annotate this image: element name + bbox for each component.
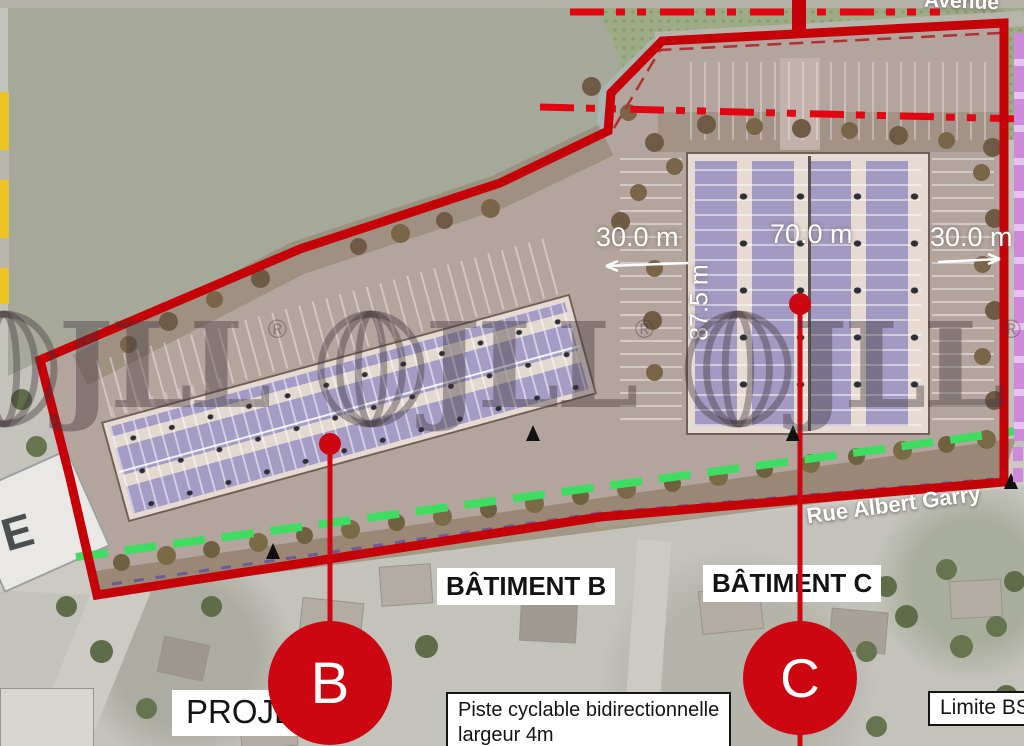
- triangle-marker: [266, 543, 280, 559]
- dimension-arrow-east: [938, 254, 1000, 264]
- street-name-avenue: Avenue: [924, 0, 1000, 15]
- dimension-arrow-west: [606, 261, 688, 271]
- dimension-west-setback: 30.0 m: [596, 222, 679, 253]
- lines-layer: [0, 0, 1024, 746]
- leader-dot-c: [789, 293, 811, 315]
- dimension-east-setback: 30.0 m: [930, 222, 1013, 253]
- marker-letter-b: B: [311, 650, 350, 717]
- zone-boundary-dash: [1013, 447, 1023, 461]
- zone-boundary-dash: [1013, 468, 1023, 482]
- marker-circle-b: B: [268, 621, 392, 745]
- leader-dot-b: [319, 433, 341, 455]
- site-plan: E BÂTIMENT B BÂTIMENT C PROJE Piste cycl…: [0, 0, 1024, 746]
- marker-circle-c: C: [743, 621, 857, 735]
- setback-line-top: [614, 33, 1000, 128]
- dimension-building-c-depth: 87.5 m: [686, 264, 715, 340]
- dimension-building-c-width: 70.0 m: [770, 219, 853, 250]
- zone-boundary-stripe: [1014, 33, 1024, 441]
- marker-letter-c: C: [780, 646, 820, 710]
- triangle-marker: [526, 425, 540, 441]
